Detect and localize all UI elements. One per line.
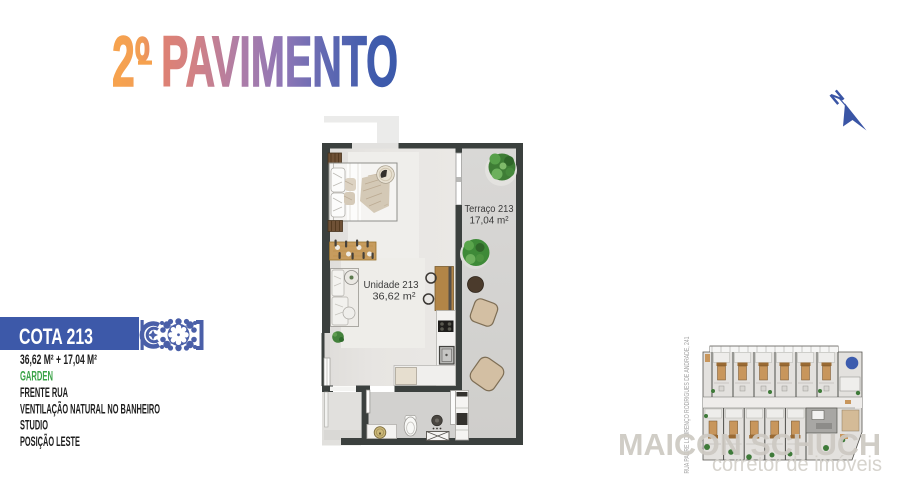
svg-text:STUDIO: STUDIO — [20, 418, 48, 433]
svg-text:17,04 m²: 17,04 m² — [470, 216, 510, 227]
svg-text:VENTILAÇÃO NATURAL NO BANHEIRO: VENTILAÇÃO NATURAL NO BANHEIRO — [20, 402, 160, 417]
svg-text:GARDEN: GARDEN — [20, 369, 53, 384]
svg-text:corretor de imóveis: corretor de imóveis — [712, 453, 882, 476]
svg-text:36,62 M² + 17,04 M²: 36,62 M² + 17,04 M² — [20, 352, 97, 367]
svg-text:36,62 m²: 36,62 m² — [373, 291, 417, 303]
svg-text:POSIÇÃO LESTE: POSIÇÃO LESTE — [20, 434, 80, 449]
svg-text:2º PAVIMENTO: 2º PAVIMENTO — [112, 23, 398, 102]
svg-text:Unidade 213: Unidade 213 — [364, 279, 419, 291]
svg-text:Terraço 213: Terraço 213 — [465, 204, 514, 215]
svg-text:COTA 213: COTA 213 — [19, 324, 93, 349]
svg-text:FRENTE RUA: FRENTE RUA — [20, 385, 68, 400]
